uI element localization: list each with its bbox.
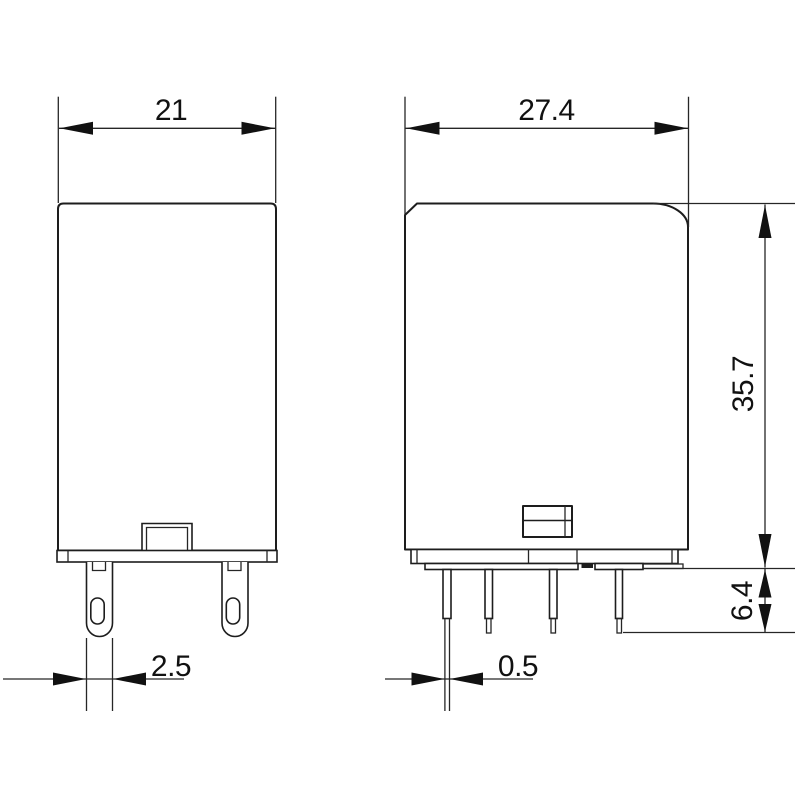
dimension-side-pin-width: 2.5 (3, 638, 191, 711)
arrowhead-right (113, 673, 146, 686)
front-view-latch-detail (523, 506, 572, 537)
pin-tip (487, 619, 492, 634)
pin-shank (550, 570, 558, 619)
pin-shank (485, 570, 493, 619)
dim-label-front-width: 27.4 (518, 94, 574, 127)
arrowhead-right (655, 122, 689, 135)
front-view-pin-3 (550, 570, 558, 634)
front-view-pin-1 (443, 570, 451, 712)
dimension-front-pin-thickness: 0.5 (385, 650, 538, 686)
arrowhead-right (450, 673, 483, 686)
dim-label-front-height: 35.7 (727, 356, 760, 412)
arrowhead-left (406, 122, 440, 135)
front-view-flange (411, 550, 678, 564)
base-plate-right (595, 564, 643, 570)
pin-tip (551, 619, 556, 634)
arrowhead-right (242, 122, 276, 135)
front-view-pin-4 (616, 570, 623, 634)
base-plate-left (425, 564, 578, 570)
side-view-pin-right (222, 562, 248, 637)
pin-shank (443, 570, 451, 619)
pin-hole (91, 598, 104, 624)
arrowhead-left (53, 673, 86, 686)
front-view-body (405, 204, 688, 550)
dim-label-front-pin-length: 6.4 (726, 581, 759, 621)
front-view: 27.4 35.7 6.4 0.5 (385, 94, 795, 711)
pin-hole (226, 598, 239, 624)
dim-label-side-width: 21 (155, 94, 187, 127)
dimension-front-pin-length: 6.4 (623, 569, 795, 633)
arrowhead-left (60, 122, 94, 135)
dim-label-side-pin-width: 2.5 (151, 650, 191, 683)
arrowhead-down (759, 534, 772, 567)
side-view-flange (57, 551, 277, 563)
drawing-canvas: 21 2.5 (0, 0, 800, 800)
arrowhead-down (759, 604, 772, 632)
front-view-pin-2 (485, 570, 493, 634)
side-view-pin-left (87, 562, 113, 637)
pin-tip (617, 619, 622, 634)
arrowhead-up (759, 570, 772, 598)
arrowhead-up (759, 205, 772, 238)
technical-drawing: 21 2.5 (0, 0, 800, 800)
side-view-body (58, 204, 276, 551)
side-view: 21 2.5 (3, 94, 277, 711)
dimension-side-width: 21 (58, 94, 275, 203)
arrowhead-left (412, 673, 445, 686)
base-plate-step (643, 564, 683, 569)
pin-shank (616, 570, 623, 619)
base-plate-stub (582, 564, 594, 569)
dim-label-front-pin-thickness: 0.5 (498, 650, 538, 683)
